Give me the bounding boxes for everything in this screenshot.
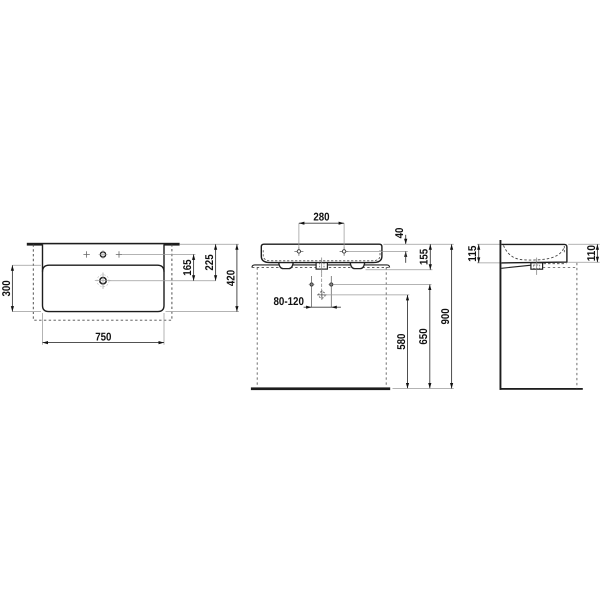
svg-text:155: 155 bbox=[419, 249, 431, 265]
svg-text:165: 165 bbox=[182, 260, 194, 276]
svg-text:300: 300 bbox=[1, 280, 13, 296]
svg-text:40: 40 bbox=[394, 228, 406, 239]
svg-text:650: 650 bbox=[418, 328, 430, 344]
svg-text:80-120: 80-120 bbox=[273, 296, 304, 308]
svg-text:420: 420 bbox=[225, 270, 237, 286]
svg-text:900: 900 bbox=[440, 308, 452, 324]
svg-text:110: 110 bbox=[586, 245, 598, 261]
svg-text:750: 750 bbox=[95, 331, 111, 343]
svg-text:225: 225 bbox=[204, 254, 216, 270]
svg-text:580: 580 bbox=[396, 334, 408, 350]
svg-text:115: 115 bbox=[467, 246, 479, 262]
svg-text:280: 280 bbox=[313, 212, 329, 224]
